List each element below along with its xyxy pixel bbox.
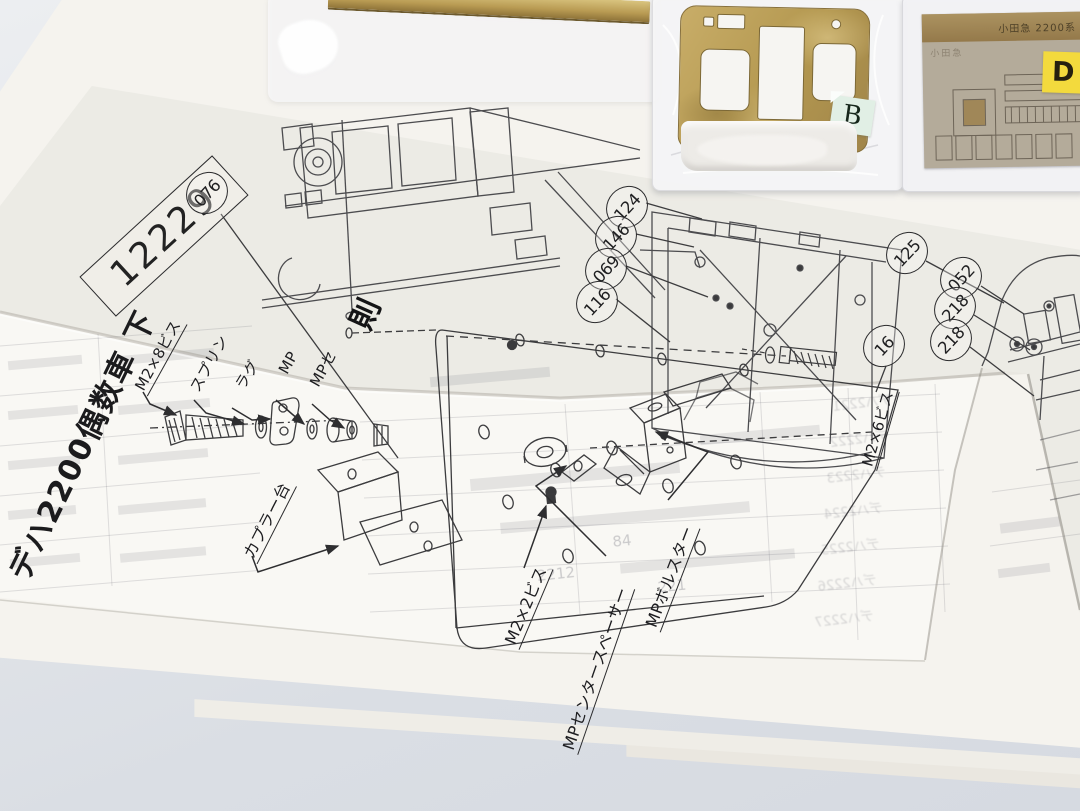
bag-crinkle: [273, 12, 344, 79]
etched-fret-bag: 小田急 2200系 小田急 D: [902, 0, 1080, 192]
sticker-d: D: [1042, 51, 1080, 93]
packing-tissue-fold: [697, 135, 827, 165]
photo-of-model-kit-instructions: 2212 221 84 デハ2221 デハ2222 デハ2223 デハ2224 …: [0, 0, 1080, 811]
panel-left-window: [699, 48, 750, 111]
car-front-view-drawing: [982, 255, 1080, 500]
panel-small-hole: [703, 17, 714, 27]
sticker-fold: [830, 91, 844, 104]
etched-brass-fret: 小田急 2200系 小田急 D: [922, 12, 1080, 169]
brass-strip-part: [328, 0, 651, 24]
brass-strip-bag: [268, 0, 660, 102]
panel-sign-window: [717, 14, 745, 30]
panel-hole: [831, 19, 841, 29]
m2x6-screw-drawing: [742, 347, 837, 369]
panel-door-opening: [757, 26, 805, 121]
sticker-d-letter: D: [1051, 57, 1074, 89]
brass-front-panel-bag: B: [652, 0, 904, 191]
